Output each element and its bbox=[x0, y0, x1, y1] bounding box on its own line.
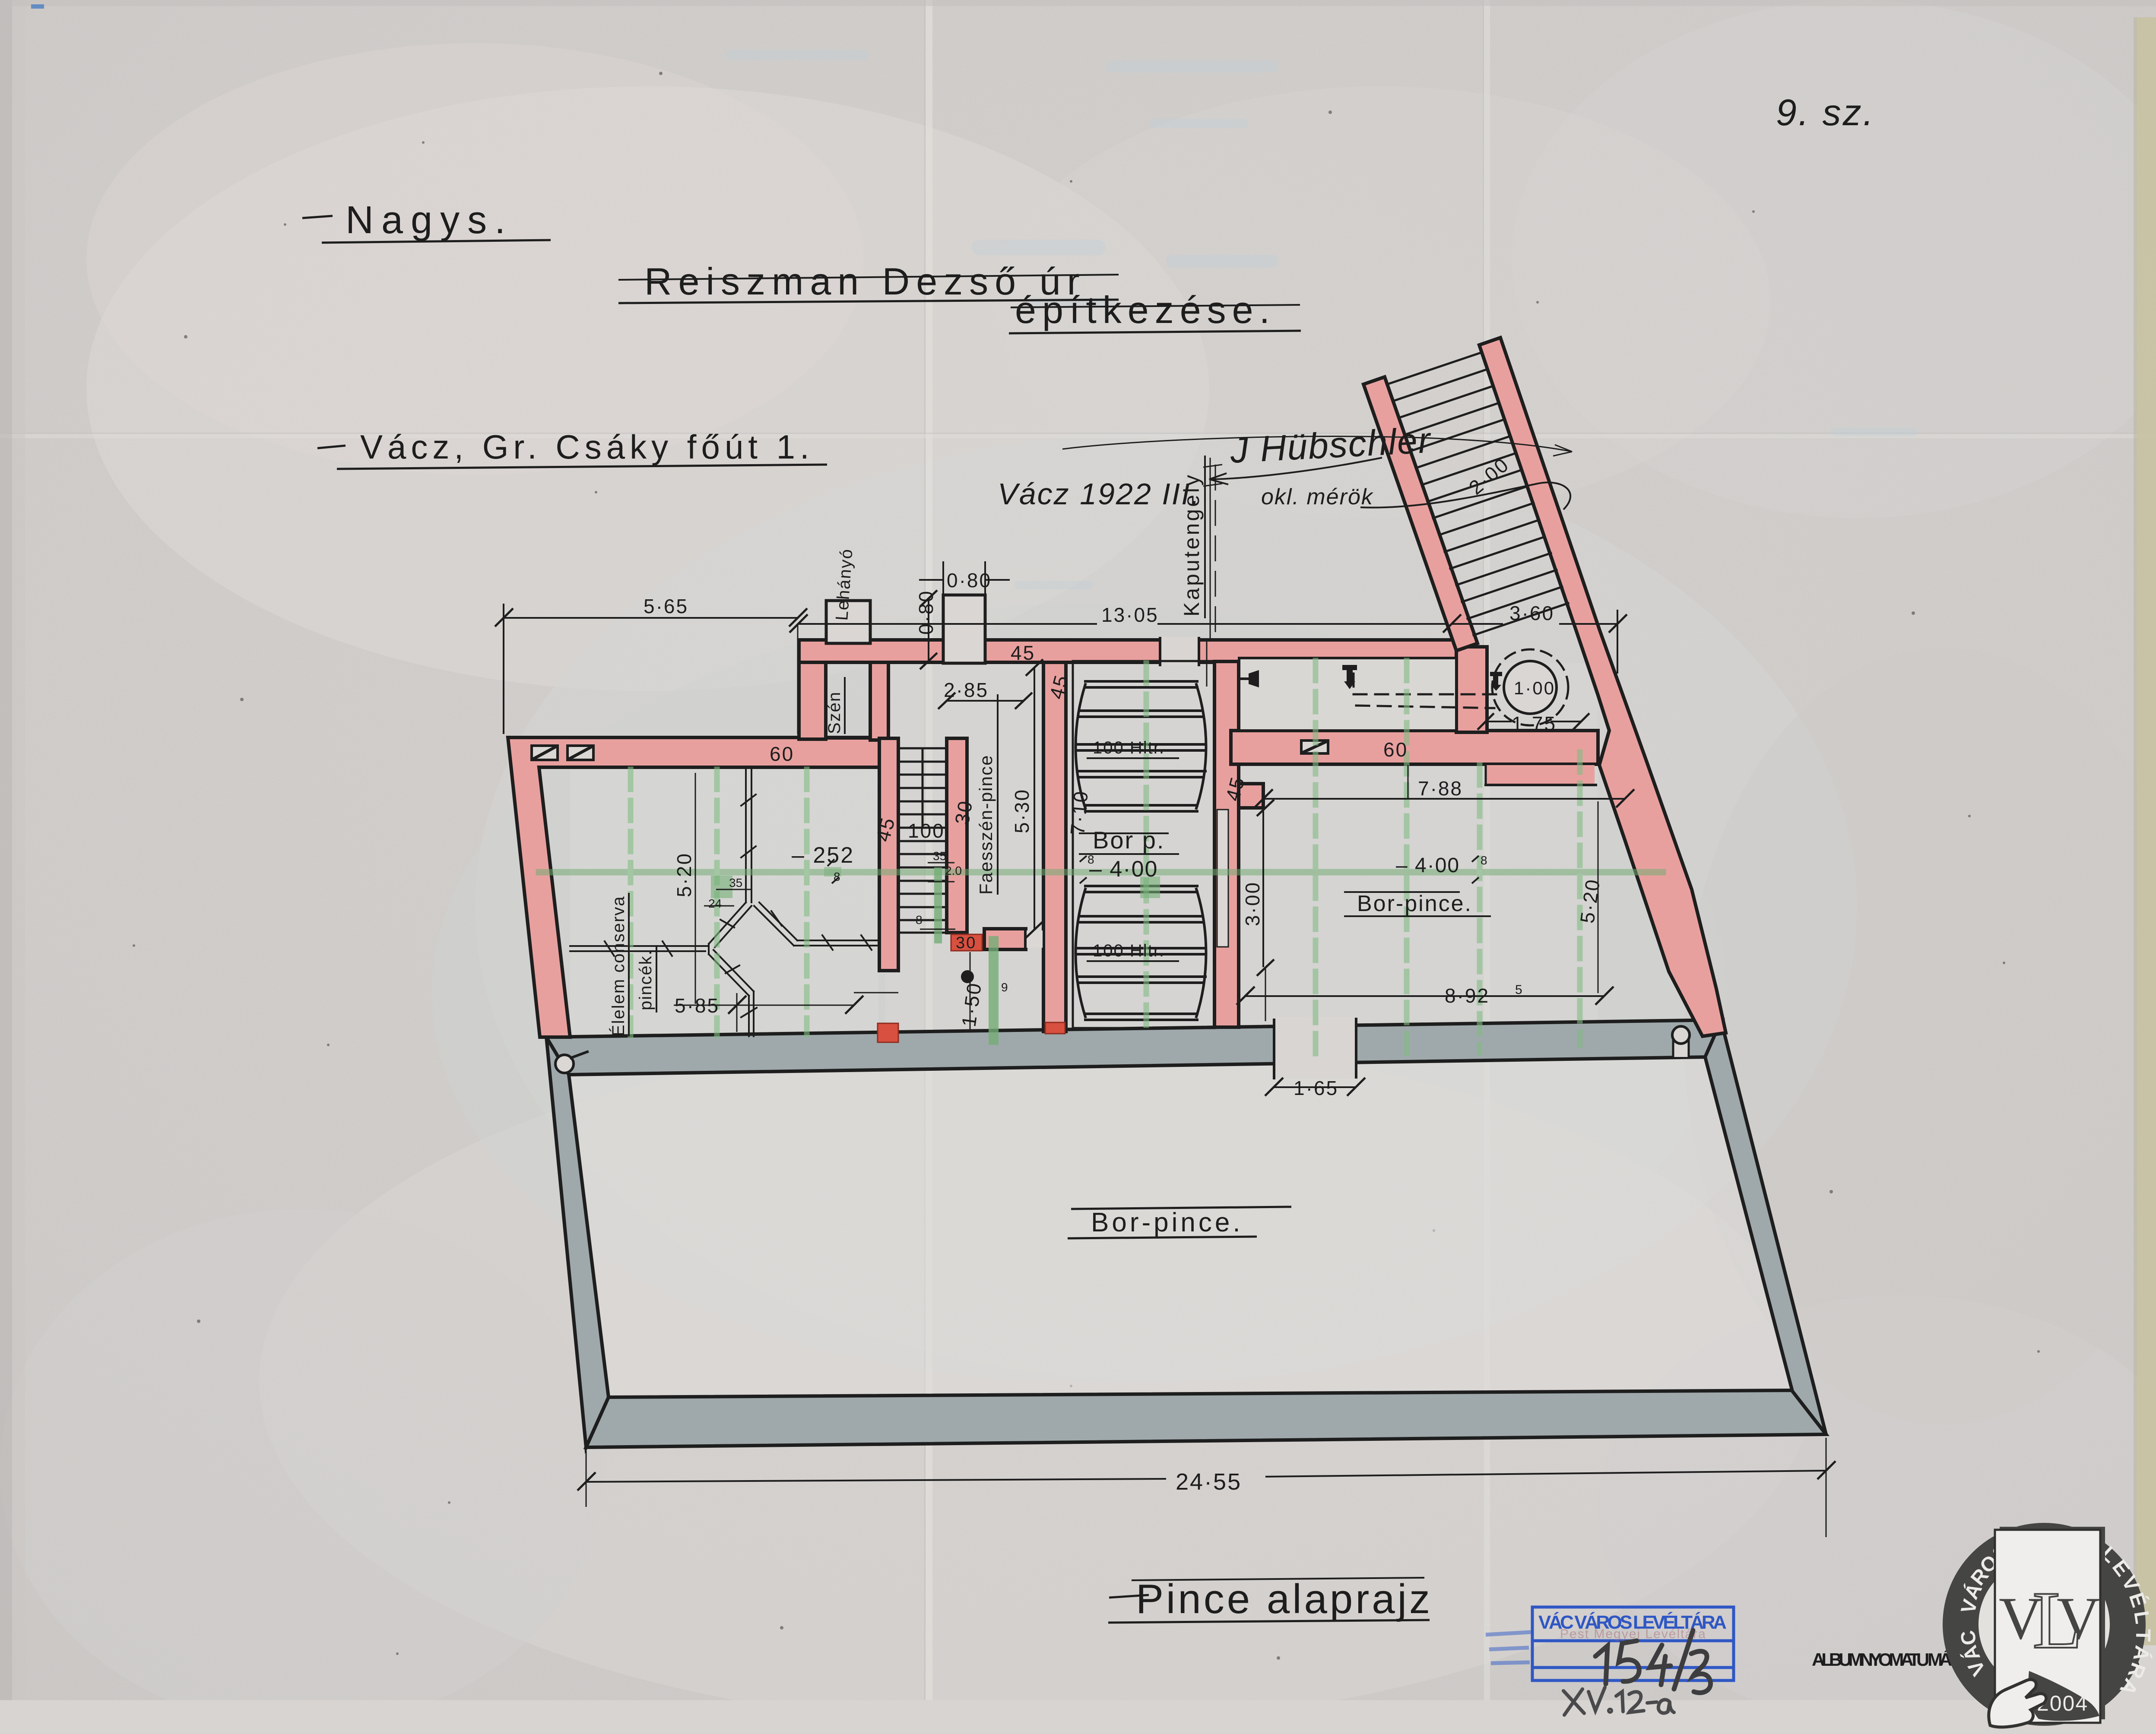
svg-text:Pince alaprajz: Pince alaprajz bbox=[1136, 1576, 1433, 1622]
svg-text:0·80: 0·80 bbox=[947, 569, 992, 592]
svg-text:9: 9 bbox=[1001, 981, 1008, 994]
svg-text:9. sz.: 9. sz. bbox=[1776, 92, 1875, 133]
svg-text:Szén: Szén bbox=[825, 691, 844, 734]
svg-text:13·05: 13·05 bbox=[1101, 604, 1159, 626]
svg-text:2·85: 2·85 bbox=[944, 679, 989, 701]
svg-text:5·65: 5·65 bbox=[644, 595, 688, 617]
svg-text:60: 60 bbox=[1383, 738, 1408, 761]
svg-text:30: 30 bbox=[951, 798, 977, 826]
svg-text:pincék.: pincék. bbox=[636, 949, 655, 1010]
svg-text:Vácz 1922 III.: Vácz 1922 III. bbox=[998, 477, 1201, 511]
svg-text:építkezése.: építkezése. bbox=[1015, 288, 1276, 331]
svg-text:100 Hltr.: 100 Hltr. bbox=[1093, 738, 1165, 757]
svg-text:100: 100 bbox=[908, 820, 945, 842]
svg-text:Vácz, Gr. Csáky főút 1.: Vácz, Gr. Csáky főút 1. bbox=[360, 428, 814, 466]
svg-text:8·92: 8·92 bbox=[1445, 984, 1490, 1007]
svg-text:Bor p.: Bor p. bbox=[1093, 826, 1165, 854]
svg-text:– 4·00: – 4·00 bbox=[1089, 857, 1158, 882]
svg-text:30: 30 bbox=[956, 934, 977, 952]
svg-text:8: 8 bbox=[834, 870, 840, 883]
svg-text:2.0: 2.0 bbox=[945, 864, 962, 877]
svg-text:T: T bbox=[2131, 1629, 2155, 1642]
svg-text:7·10: 7·10 bbox=[1066, 789, 1092, 836]
svg-text:7·88: 7·88 bbox=[1418, 777, 1463, 800]
svg-text:5·85: 5·85 bbox=[675, 994, 720, 1017]
svg-text:L: L bbox=[2032, 1575, 2083, 1666]
svg-text:1·65: 1·65 bbox=[1294, 1077, 1338, 1099]
svg-text:24: 24 bbox=[708, 897, 722, 910]
svg-text:Élelem conserva: Élelem conserva bbox=[609, 895, 628, 1036]
svg-text:35: 35 bbox=[933, 849, 946, 863]
svg-text:35: 35 bbox=[729, 876, 742, 889]
svg-text:1·00: 1·00 bbox=[1514, 678, 1555, 698]
svg-text:60: 60 bbox=[770, 743, 794, 765]
svg-text:5·30: 5·30 bbox=[1011, 788, 1033, 833]
svg-text:45: 45 bbox=[1011, 642, 1035, 664]
svg-text:okl. mérök: okl. mérök bbox=[1261, 484, 1374, 509]
svg-text:8: 8 bbox=[916, 913, 923, 927]
svg-text:5: 5 bbox=[1515, 983, 1524, 997]
svg-text:0·80: 0·80 bbox=[915, 590, 937, 635]
svg-text:Bor-pince.: Bor-pince. bbox=[1357, 891, 1472, 916]
svg-text:5·20: 5·20 bbox=[673, 852, 695, 897]
svg-text:Faesszén-pince: Faesszén-pince bbox=[976, 755, 996, 895]
svg-text:– 4·00: – 4·00 bbox=[1396, 854, 1460, 877]
svg-text:100 Hltr.: 100 Hltr. bbox=[1093, 941, 1165, 960]
svg-text:– 252: – 252 bbox=[792, 843, 854, 868]
svg-text:Bor-pince.: Bor-pince. bbox=[1091, 1208, 1243, 1237]
svg-text:1·75: 1·75 bbox=[1512, 712, 1557, 735]
svg-text:3·60: 3·60 bbox=[1509, 602, 1554, 624]
svg-text:3·00: 3·00 bbox=[1241, 881, 1264, 926]
svg-text:24·55: 24·55 bbox=[1176, 1469, 1242, 1495]
svg-text:Nagys.: Nagys. bbox=[346, 199, 513, 242]
svg-text:8: 8 bbox=[1481, 854, 1487, 867]
